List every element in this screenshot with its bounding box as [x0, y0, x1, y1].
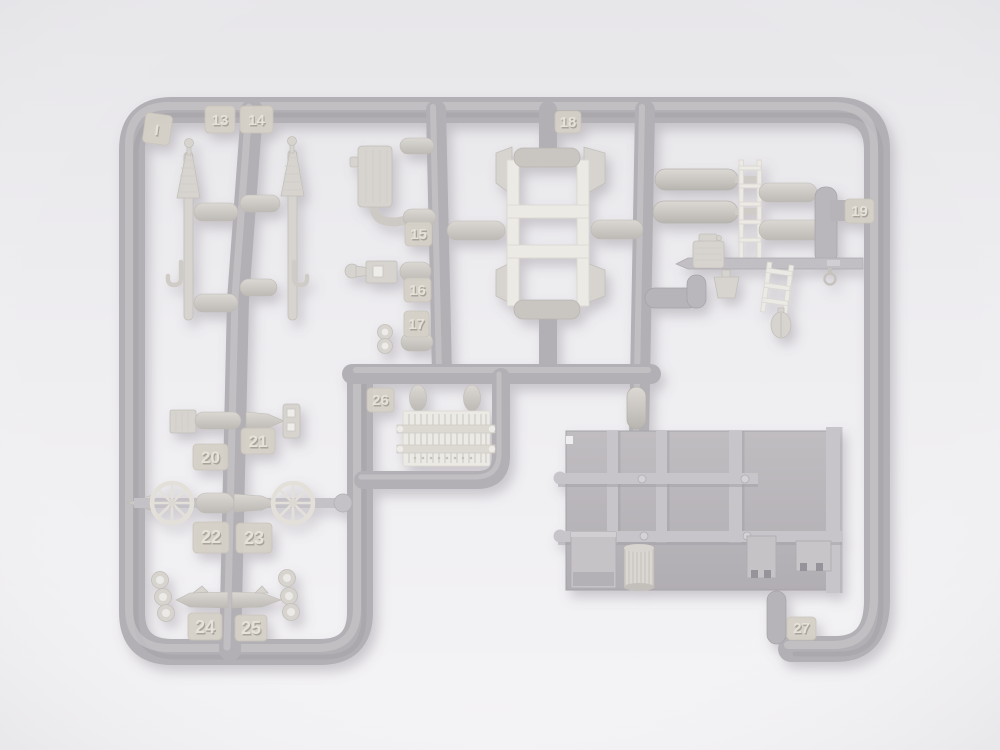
tag-letter: I I [142, 112, 173, 145]
panel-rib-horizontal [558, 473, 758, 484]
sprue-photo-canvas: I I 13 13 14 14 15 15 16 16 [0, 0, 1000, 750]
tag-18: 18 18 [555, 111, 581, 133]
tag-17: 17 17 [404, 311, 429, 337]
svg-text:23: 23 [244, 528, 264, 548]
tag-27: 27 27 [787, 617, 816, 640]
wheel-left [152, 483, 192, 523]
tag-22: 22 22 [193, 522, 229, 553]
tag-20: 20 20 [193, 444, 228, 470]
svg-text:15: 15 [410, 226, 427, 243]
panel-bottom-stub [767, 591, 786, 644]
sprue-photo: I I 13 13 14 14 15 15 16 16 [0, 0, 1000, 750]
tag-25: 25 25 [235, 615, 267, 641]
part-notched-block-right [796, 541, 831, 571]
svg-text:17: 17 [408, 316, 425, 333]
tag-16: 16 16 [404, 278, 431, 302]
svg-text:13: 13 [212, 112, 229, 129]
svg-text:16: 16 [409, 282, 426, 299]
tag-21: 21 21 [241, 428, 275, 454]
tag-26: 26 26 [367, 388, 394, 412]
svg-text:27: 27 [793, 620, 810, 637]
part-cable-drum [624, 544, 654, 591]
tag-13: 13 13 [205, 106, 235, 133]
part-storage-crate [571, 532, 616, 588]
part-small-cylinder [627, 387, 646, 429]
svg-text:18: 18 [560, 114, 577, 131]
svg-text:20: 20 [201, 448, 220, 467]
tag-23: 23 23 [236, 523, 272, 553]
runner-vertical-engine [433, 107, 442, 374]
tag-19: 19 19 [845, 199, 874, 223]
svg-text:21: 21 [249, 432, 268, 451]
svg-text:14: 14 [248, 112, 265, 129]
svg-text:19: 19 [851, 203, 868, 220]
tag-24: 24 24 [188, 613, 222, 640]
svg-text:25: 25 [241, 618, 261, 638]
tag-14: 14 14 [240, 106, 273, 133]
svg-text:26: 26 [372, 392, 389, 409]
svg-text:24: 24 [195, 617, 215, 637]
svg-text:22: 22 [201, 527, 221, 547]
part-notched-block-left [747, 536, 776, 578]
tag-15: 15 15 [405, 222, 432, 246]
runner-vertical-right [636, 107, 645, 436]
wheel-right [273, 483, 313, 523]
